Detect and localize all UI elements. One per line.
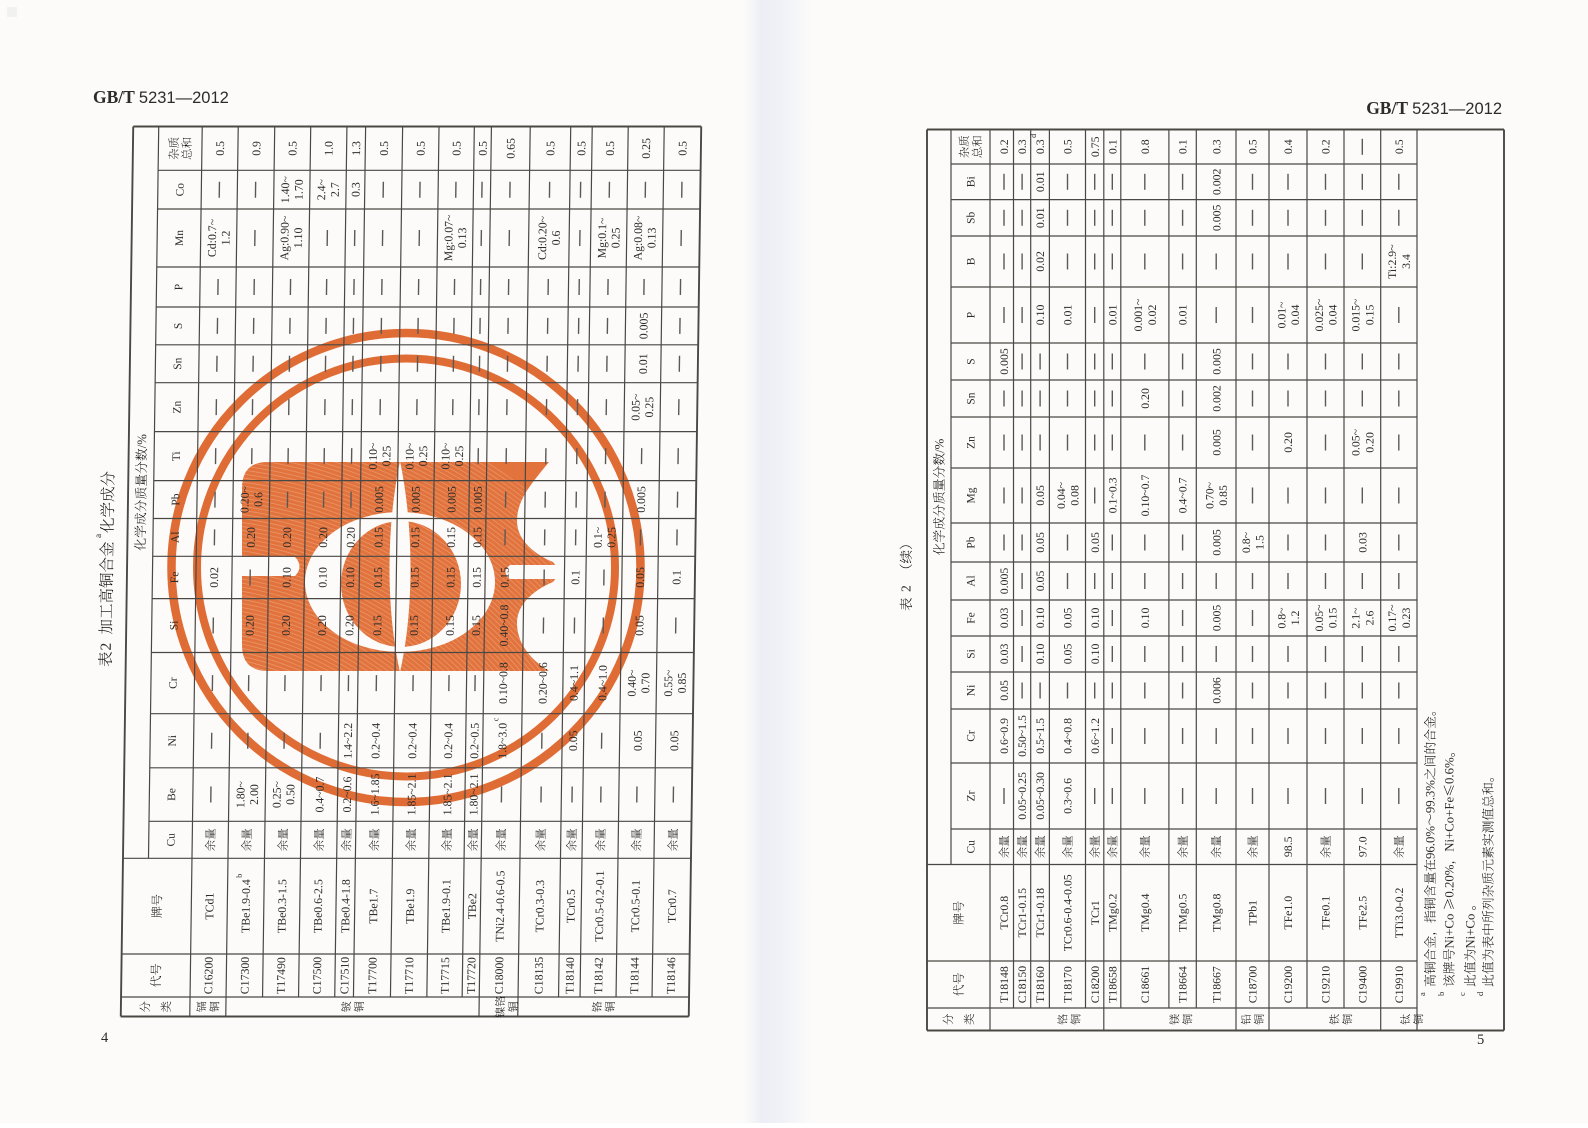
svg-text:TCr0.5-0.1: TCr0.5-0.1 — [628, 880, 643, 933]
svg-text:1.40~: 1.40~ — [278, 176, 292, 204]
svg-text:0.23: 0.23 — [1399, 608, 1413, 629]
svg-text:TFe2.5: TFe2.5 — [1356, 896, 1370, 930]
svg-text:TCr0.7: TCr0.7 — [665, 889, 679, 923]
svg-text:Ti:2.9~: Ti:2.9~ — [1385, 244, 1399, 279]
svg-text:0.04: 0.04 — [1288, 305, 1302, 326]
svg-text:0.15: 0.15 — [371, 527, 385, 548]
svg-text:0.5: 0.5 — [377, 141, 391, 156]
svg-text:0.08: 0.08 — [1067, 485, 1081, 506]
svg-text:C19400: C19400 — [1356, 966, 1370, 1003]
svg-text:0.70~: 0.70~ — [1203, 481, 1217, 509]
svg-text:1.2: 1.2 — [1288, 611, 1302, 626]
svg-text:0.05: 0.05 — [633, 567, 647, 588]
svg-text:Ti: Ti — [171, 451, 183, 461]
svg-text:0.01: 0.01 — [636, 353, 650, 374]
svg-text:2: 2 — [98, 643, 115, 651]
svg-text:0.15: 0.15 — [408, 527, 422, 548]
svg-text:TBe1.9-0.1: TBe1.9-0.1 — [439, 879, 454, 933]
svg-text:0.005: 0.005 — [997, 348, 1011, 375]
svg-text:Pb: Pb — [966, 536, 978, 548]
svg-text:1.4~2.2: 1.4~2.2 — [341, 723, 356, 759]
svg-text:0.4~1.0: 0.4~1.0 — [595, 665, 610, 701]
svg-text:C17300: C17300 — [237, 957, 252, 994]
svg-text:1.5: 1.5 — [1252, 535, 1266, 550]
svg-text:97.0: 97.0 — [1356, 836, 1370, 857]
svg-text:0.03: 0.03 — [1356, 532, 1370, 553]
svg-text:0.85: 0.85 — [675, 673, 689, 694]
svg-text:C18000: C18000 — [492, 957, 507, 994]
svg-text:0.10: 0.10 — [343, 567, 357, 588]
svg-text:Cd:0.20~: Cd:0.20~ — [535, 215, 550, 260]
svg-text:TPb1: TPb1 — [1246, 900, 1260, 926]
svg-text:0.005: 0.005 — [1209, 529, 1223, 556]
svg-text:0.05~0.30: 0.05~0.30 — [1033, 772, 1047, 820]
svg-text:0.5: 0.5 — [675, 141, 689, 156]
svg-text:0.10: 0.10 — [1033, 644, 1047, 665]
svg-text:Mn: Mn — [174, 230, 186, 246]
svg-text:0.01: 0.01 — [1033, 207, 1047, 228]
svg-text:0.20: 0.20 — [279, 615, 293, 636]
svg-text:TBe1.7: TBe1.7 — [366, 889, 380, 924]
svg-text:0.5: 0.5 — [1061, 139, 1075, 154]
svg-text:0.4: 0.4 — [1281, 139, 1295, 154]
svg-text:0.01: 0.01 — [1033, 171, 1047, 192]
svg-text:0.13: 0.13 — [644, 228, 658, 249]
svg-text:0.10~0.8: 0.10~0.8 — [496, 662, 511, 704]
svg-text:TFe0.1: TFe0.1 — [1319, 896, 1333, 930]
svg-text:C19210: C19210 — [1319, 966, 1333, 1003]
svg-text:Si: Si — [966, 649, 978, 659]
svg-text:TCr0.5-0.2-0.1: TCr0.5-0.2-0.1 — [592, 871, 607, 942]
svg-text:0.015~: 0.015~ — [1349, 298, 1363, 332]
svg-text:c: c — [491, 717, 500, 721]
svg-text:Zn: Zn — [172, 400, 184, 413]
svg-text:0.15: 0.15 — [497, 567, 511, 588]
svg-text:0.02: 0.02 — [207, 567, 221, 588]
svg-text:TCr0.5: TCr0.5 — [563, 889, 577, 923]
svg-text:Al: Al — [170, 532, 182, 543]
svg-text:TBe2: TBe2 — [465, 893, 479, 919]
svg-text:T18160: T18160 — [1033, 966, 1047, 1003]
svg-text:TMg0.8: TMg0.8 — [1209, 893, 1223, 931]
svg-text:0.40~: 0.40~ — [625, 669, 639, 697]
svg-text:TCr0.3-0.3: TCr0.3-0.3 — [532, 880, 547, 933]
svg-text:0.3~0.6: 0.3~0.6 — [1061, 778, 1075, 814]
svg-text:3.4: 3.4 — [1399, 254, 1413, 269]
svg-text:0.04~: 0.04~ — [1054, 481, 1068, 509]
svg-text:TBe0.6-2.5: TBe0.6-2.5 — [311, 879, 326, 933]
svg-text:Fe: Fe — [966, 612, 978, 624]
svg-text:0.05: 0.05 — [632, 615, 646, 636]
svg-text:T17490: T17490 — [274, 957, 289, 994]
svg-text:C18200: C18200 — [1088, 966, 1102, 1003]
svg-text:0.10: 0.10 — [1088, 608, 1102, 629]
svg-text:0.4~0.7: 0.4~0.7 — [312, 777, 327, 813]
svg-text:0.10: 0.10 — [1138, 608, 1152, 629]
svg-text:0.4~0.8: 0.4~0.8 — [1061, 718, 1075, 754]
svg-text:0.25: 0.25 — [608, 228, 622, 249]
svg-text:C19200: C19200 — [1281, 966, 1295, 1003]
svg-text:0.15: 0.15 — [370, 615, 384, 636]
svg-text:/%: /% — [135, 434, 149, 449]
svg-text:Fe: Fe — [169, 572, 181, 583]
svg-text:0.1: 0.1 — [568, 570, 582, 585]
svg-text:P: P — [966, 312, 978, 318]
svg-text:T17700: T17700 — [365, 957, 380, 994]
svg-text:0.5: 0.5 — [574, 141, 588, 156]
svg-text:0.05: 0.05 — [1088, 532, 1102, 553]
svg-text:0.15: 0.15 — [443, 615, 457, 636]
svg-text:0.10: 0.10 — [1088, 644, 1102, 665]
svg-text:5: 5 — [1477, 1032, 1484, 1048]
svg-text:0.05~0.25: 0.05~0.25 — [1015, 772, 1029, 820]
svg-text:Ni+Co: Ni+Co — [1443, 914, 1457, 949]
svg-text:c: c — [1457, 992, 1467, 996]
svg-text:0.25: 0.25 — [642, 397, 656, 418]
svg-text:TFe1.0: TFe1.0 — [1281, 896, 1295, 930]
svg-text:0.50~1.5: 0.50~1.5 — [1015, 715, 1029, 757]
svg-text:Zn: Zn — [966, 436, 978, 449]
svg-text:96.0%: 96.0% — [1424, 826, 1438, 859]
svg-text:0.20: 0.20 — [244, 527, 258, 548]
svg-text:0.4~1.1: 0.4~1.1 — [567, 665, 582, 701]
svg-text:0.5: 0.5 — [603, 141, 617, 156]
svg-text:0.15: 0.15 — [1362, 305, 1376, 326]
svg-text:0.20: 0.20 — [242, 615, 256, 636]
svg-text:0.3: 0.3 — [1015, 139, 1029, 154]
svg-text:0.05: 0.05 — [1061, 644, 1075, 665]
svg-text:0.15: 0.15 — [444, 527, 458, 548]
svg-text:T18667: T18667 — [1209, 966, 1223, 1003]
svg-text:0.2: 0.2 — [1319, 139, 1333, 154]
svg-text:0.65: 0.65 — [503, 138, 517, 159]
svg-text:0.005: 0.005 — [636, 313, 650, 340]
svg-text:0.2: 0.2 — [997, 139, 1011, 154]
svg-text:GB/T 5231—2012: GB/T 5231—2012 — [1366, 98, 1502, 118]
svg-text:2.7: 2.7 — [328, 182, 342, 197]
svg-text:0.005: 0.005 — [444, 486, 458, 513]
svg-text:0.5: 0.5 — [476, 141, 490, 156]
svg-text:C19910: C19910 — [1392, 966, 1406, 1003]
svg-text:0.20: 0.20 — [1281, 432, 1295, 453]
svg-text:0.17~: 0.17~ — [1385, 604, 1399, 632]
svg-text:TBe0.4-1.8: TBe0.4-1.8 — [338, 879, 353, 933]
svg-text:T18658: T18658 — [1105, 966, 1119, 1003]
svg-text:T18664: T18664 — [1176, 966, 1190, 1003]
svg-text:2: 2 — [899, 585, 914, 592]
svg-text:0.10~0.7: 0.10~0.7 — [1138, 475, 1152, 517]
svg-text:0.05~: 0.05~ — [1312, 604, 1326, 632]
svg-text:0.5: 0.5 — [543, 141, 557, 156]
svg-text:0.02: 0.02 — [1033, 251, 1047, 272]
svg-text:0.04: 0.04 — [1325, 305, 1339, 326]
svg-text:0.8~: 0.8~ — [1239, 531, 1253, 553]
svg-text:0.5: 0.5 — [414, 141, 428, 156]
svg-text:0.9: 0.9 — [249, 141, 263, 156]
svg-text:Sn: Sn — [966, 392, 978, 404]
svg-text:0.15: 0.15 — [443, 567, 457, 588]
svg-text:0.15: 0.15 — [1325, 608, 1339, 629]
svg-text:T17710: T17710 — [402, 957, 417, 994]
svg-text:0.05: 0.05 — [1033, 571, 1047, 592]
svg-text:0.2~0.4: 0.2~0.4 — [441, 723, 456, 759]
svg-text:0.1: 0.1 — [669, 570, 683, 585]
svg-text:0.05~: 0.05~ — [628, 393, 642, 421]
svg-text:99.3%: 99.3% — [1424, 780, 1438, 813]
svg-text:0.25: 0.25 — [639, 138, 653, 159]
svg-text:1.10: 1.10 — [291, 228, 305, 249]
svg-text:98.5: 98.5 — [1281, 836, 1295, 857]
svg-text:T17720: T17720 — [464, 957, 479, 994]
svg-text:C18135: C18135 — [531, 957, 546, 994]
svg-text:Ag:0.08~: Ag:0.08~ — [631, 215, 646, 260]
svg-text:TTi3.0-0.2: TTi3.0-0.2 — [1392, 888, 1406, 939]
svg-text:0.005: 0.005 — [372, 486, 386, 513]
svg-text:T18142: T18142 — [591, 957, 606, 994]
svg-text:1.70: 1.70 — [292, 179, 306, 200]
svg-text:0.10: 0.10 — [1033, 305, 1047, 326]
svg-text:0.01: 0.01 — [1061, 305, 1075, 326]
svg-text:TBe1.9: TBe1.9 — [403, 889, 417, 924]
svg-text:0.5: 0.5 — [1392, 139, 1406, 154]
svg-text:2.1~: 2.1~ — [1349, 607, 1363, 629]
svg-text:0.005: 0.005 — [634, 486, 648, 513]
svg-text:0.5: 0.5 — [213, 141, 227, 156]
svg-text:0.25: 0.25 — [379, 446, 393, 467]
svg-text:0.15: 0.15 — [407, 615, 421, 636]
svg-text:0.4~0.7: 0.4~0.7 — [1176, 477, 1190, 513]
svg-text:TCr0.8: TCr0.8 — [997, 896, 1011, 930]
svg-text:TCr1-0.18: TCr1-0.18 — [1033, 888, 1047, 938]
svg-text:0.2~0.4: 0.2~0.4 — [368, 723, 383, 759]
svg-text:2.6: 2.6 — [1362, 611, 1376, 626]
svg-text:0.2~0.4: 0.2~0.4 — [405, 723, 420, 759]
svg-text:TMg0.5: TMg0.5 — [1176, 893, 1190, 931]
svg-text:Cr: Cr — [168, 677, 180, 689]
svg-text:0.20: 0.20 — [280, 527, 294, 548]
svg-text:1.0: 1.0 — [322, 141, 336, 156]
svg-text:0.005: 0.005 — [1209, 429, 1223, 456]
svg-text:0.8: 0.8 — [1138, 139, 1152, 154]
svg-text:0.20: 0.20 — [1362, 432, 1376, 453]
svg-text:0.20: 0.20 — [316, 527, 330, 548]
svg-text:Ni+Co+Fe: Ni+Co+Fe — [1443, 797, 1457, 852]
svg-text:S: S — [173, 323, 185, 329]
svg-text:0.20~0.6: 0.20~0.6 — [536, 662, 551, 704]
svg-text:0.6: 0.6 — [549, 231, 563, 246]
svg-text:1.6~1.85: 1.6~1.85 — [368, 774, 383, 816]
svg-text:4: 4 — [101, 1030, 109, 1046]
svg-text:TCr1: TCr1 — [1088, 900, 1102, 925]
svg-text:0.005: 0.005 — [997, 568, 1011, 595]
svg-text:TMg0.2: TMg0.2 — [1105, 893, 1119, 931]
svg-text:C18661: C18661 — [1138, 966, 1152, 1003]
svg-text:0.6~1.2: 0.6~1.2 — [1088, 718, 1102, 754]
svg-text:1.80~: 1.80~ — [233, 780, 247, 808]
svg-text:GB/T 5231—2012: GB/T 5231—2012 — [93, 87, 229, 107]
svg-text:0.15: 0.15 — [407, 567, 421, 588]
svg-text:C18150: C18150 — [1015, 966, 1029, 1003]
svg-text:b: b — [1436, 992, 1446, 996]
svg-text:Sn: Sn — [172, 357, 184, 369]
svg-text:0.20: 0.20 — [315, 615, 329, 636]
svg-text:TNi2.4-0.6-0.5: TNi2.4-0.6-0.5 — [493, 871, 508, 942]
svg-text:0.05~: 0.05~ — [1349, 428, 1363, 456]
svg-text:0.005: 0.005 — [409, 486, 423, 513]
svg-text:0.10~: 0.10~ — [366, 442, 380, 470]
svg-text:0.1~: 0.1~ — [591, 526, 605, 548]
svg-text:0.20: 0.20 — [342, 615, 356, 636]
svg-text:Mg:0.1~: Mg:0.1~ — [595, 217, 610, 258]
svg-text:0.10~: 0.10~ — [438, 442, 452, 470]
svg-text:0.05: 0.05 — [631, 730, 645, 751]
svg-text:Ni: Ni — [167, 735, 179, 746]
svg-text:0.05: 0.05 — [566, 730, 580, 751]
svg-text:C18700: C18700 — [1246, 966, 1260, 1003]
svg-text:0.15: 0.15 — [470, 527, 484, 548]
svg-text:1.80~2.1: 1.80~2.1 — [466, 774, 481, 816]
svg-text:C17510: C17510 — [337, 957, 352, 994]
svg-text:0.005: 0.005 — [1209, 348, 1223, 375]
svg-text:0.8~: 0.8~ — [1274, 607, 1288, 629]
svg-text:d: d — [1029, 134, 1038, 138]
svg-text:0.10~: 0.10~ — [402, 442, 416, 470]
svg-text:0.5~1.5: 0.5~1.5 — [1033, 718, 1047, 754]
svg-text:0.05: 0.05 — [667, 730, 681, 751]
svg-text:b: b — [235, 874, 244, 878]
svg-text:C17500: C17500 — [310, 957, 325, 994]
svg-text:0.1: 0.1 — [1176, 139, 1190, 154]
svg-text:0.05: 0.05 — [997, 680, 1011, 701]
svg-text:T18170: T18170 — [1061, 966, 1075, 1003]
svg-text:Cu: Cu — [165, 833, 177, 847]
svg-text:P: P — [173, 284, 185, 290]
svg-text:TCr0.6-0.4-0.05: TCr0.6-0.4-0.05 — [1061, 874, 1075, 951]
svg-text:0.13: 0.13 — [455, 228, 469, 249]
svg-text:Sb: Sb — [966, 212, 978, 224]
svg-text:0.5: 0.5 — [1246, 139, 1260, 154]
svg-text:0.002: 0.002 — [1209, 168, 1223, 195]
svg-text:0.006: 0.006 — [1209, 677, 1223, 704]
svg-text:2.00: 2.00 — [247, 784, 261, 805]
svg-text:0.2~0.5: 0.2~0.5 — [467, 723, 482, 759]
svg-text:0.002: 0.002 — [1209, 385, 1223, 412]
svg-text:0.40~0.8: 0.40~0.8 — [497, 605, 512, 647]
svg-text:0.1: 0.1 — [1105, 139, 1119, 154]
svg-text:Mg:0.07~: Mg:0.07~ — [441, 214, 456, 261]
svg-text:TMg0.4: TMg0.4 — [1138, 893, 1152, 931]
svg-text:B: B — [966, 257, 978, 265]
svg-text:Cd:0.7~: Cd:0.7~ — [205, 218, 220, 257]
svg-text:/%: /% — [933, 438, 947, 453]
svg-text:0.6%: 0.6% — [1443, 757, 1457, 784]
svg-text:0.25~: 0.25~ — [269, 780, 283, 808]
svg-text:Bi: Bi — [966, 176, 978, 187]
svg-text:TBe1.9-0.4: TBe1.9-0.4 — [238, 879, 253, 933]
svg-text:Si: Si — [168, 621, 180, 631]
svg-text:1.85~2.1: 1.85~2.1 — [440, 774, 455, 816]
svg-text:0.20%: 0.20% — [1443, 864, 1457, 897]
svg-text:0.005: 0.005 — [471, 486, 485, 513]
svg-text:0.03: 0.03 — [997, 644, 1011, 665]
svg-text:Ag:0.90~: Ag:0.90~ — [277, 215, 292, 260]
svg-text:0.5: 0.5 — [285, 141, 299, 156]
svg-text:0.3: 0.3 — [348, 182, 362, 197]
svg-text:T18146: T18146 — [664, 957, 679, 994]
svg-text:S: S — [966, 358, 978, 364]
svg-text:0.03: 0.03 — [997, 608, 1011, 629]
svg-text:0.20: 0.20 — [1138, 388, 1152, 409]
svg-text:0.6: 0.6 — [251, 492, 265, 507]
svg-text:T18140: T18140 — [562, 957, 577, 994]
svg-text:0.70: 0.70 — [638, 673, 652, 694]
svg-text:Al: Al — [966, 575, 978, 587]
svg-text:TCr1-0.15: TCr1-0.15 — [1015, 888, 1029, 938]
svg-text:a: a — [1417, 992, 1427, 996]
svg-text:0.25: 0.25 — [416, 446, 430, 467]
svg-text:0.1~0.3: 0.1~0.3 — [1105, 477, 1119, 513]
svg-text:Zr: Zr — [966, 790, 978, 801]
svg-text:TCd1: TCd1 — [202, 893, 216, 920]
svg-text:Ni: Ni — [966, 685, 978, 697]
svg-text:2.4~: 2.4~ — [314, 178, 328, 200]
svg-text:0.50: 0.50 — [283, 784, 297, 805]
svg-text:Be: Be — [166, 788, 178, 801]
svg-text:C16200: C16200 — [201, 957, 216, 994]
svg-text:0.25: 0.25 — [452, 446, 466, 467]
svg-text:0.15: 0.15 — [469, 615, 483, 636]
svg-text:0.05: 0.05 — [1033, 485, 1047, 506]
svg-text:0.01: 0.01 — [1105, 305, 1119, 326]
svg-text:0.85: 0.85 — [1216, 485, 1230, 506]
svg-text:0.15: 0.15 — [470, 567, 484, 588]
svg-text:0.15: 0.15 — [371, 567, 385, 588]
svg-text:0.55~: 0.55~ — [661, 669, 675, 697]
svg-text:TBe0.3-1.5: TBe0.3-1.5 — [275, 879, 290, 933]
svg-text:0.005: 0.005 — [1209, 204, 1223, 231]
svg-text:0.10: 0.10 — [315, 567, 329, 588]
svg-text:0.20: 0.20 — [344, 527, 358, 548]
svg-text:0.05: 0.05 — [1033, 532, 1047, 553]
svg-text:1.3: 1.3 — [349, 141, 363, 156]
svg-text:0.05: 0.05 — [1061, 608, 1075, 629]
svg-text:1.85~2.1: 1.85~2.1 — [404, 774, 419, 816]
svg-text:0.10: 0.10 — [1033, 608, 1047, 629]
svg-text:Mg: Mg — [966, 487, 978, 503]
svg-text:Ni+Co: Ni+Co — [1464, 914, 1478, 949]
svg-text:Pb: Pb — [170, 493, 182, 505]
svg-text:0.001~: 0.001~ — [1131, 298, 1145, 332]
svg-text:T18144: T18144 — [627, 957, 642, 994]
svg-text:0.025~: 0.025~ — [1312, 298, 1326, 332]
svg-text:0.3: 0.3 — [1209, 139, 1223, 154]
svg-text:0.20~: 0.20~ — [237, 485, 251, 513]
svg-text:0.02: 0.02 — [1145, 305, 1159, 326]
svg-text:0.01: 0.01 — [1176, 305, 1190, 326]
svg-text:0.01~: 0.01~ — [1274, 301, 1288, 329]
svg-text:Cr: Cr — [966, 730, 978, 742]
svg-text:0.005: 0.005 — [1209, 605, 1223, 632]
svg-text:Cu: Cu — [966, 840, 978, 854]
svg-text:0.6~0.9: 0.6~0.9 — [997, 718, 1011, 754]
svg-text:0.2~0.6: 0.2~0.6 — [340, 777, 355, 813]
svg-text:0.75: 0.75 — [1088, 136, 1102, 157]
svg-text:1.2: 1.2 — [218, 231, 232, 246]
svg-text:0.5: 0.5 — [449, 141, 463, 156]
svg-text:1.8~3.0: 1.8~3.0 — [495, 723, 510, 759]
svg-text:0.3: 0.3 — [1033, 139, 1047, 154]
svg-text:0.25: 0.25 — [604, 527, 618, 548]
